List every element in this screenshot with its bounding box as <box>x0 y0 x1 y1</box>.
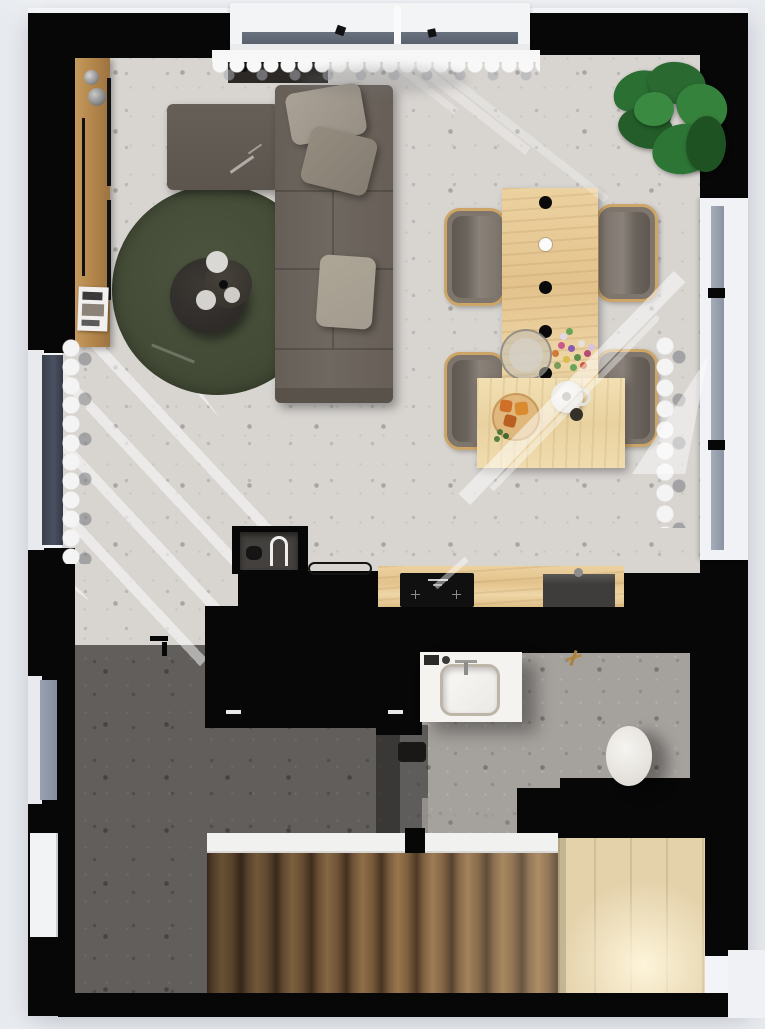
vanity-object <box>442 656 450 664</box>
coffee-table-plate <box>206 251 228 273</box>
niche-object <box>246 546 262 560</box>
hallway-concrete-patch <box>422 798 518 836</box>
dining-chair <box>596 204 658 302</box>
sideboard-rail <box>107 200 111 300</box>
magazine-print <box>81 320 99 327</box>
basin-faucet-stem <box>464 662 468 675</box>
sofa-seam <box>275 190 393 192</box>
sofa-pillow <box>316 254 377 330</box>
tray <box>308 562 372 575</box>
island-handle <box>388 710 403 714</box>
herb-sprig <box>497 429 503 435</box>
sofa-chaise <box>167 104 279 190</box>
wall-right-stairs <box>704 836 748 956</box>
glass-bowl-inner <box>509 338 543 372</box>
cooktop-burner-mark <box>411 590 420 599</box>
snack-item <box>514 401 528 415</box>
wall-hall-inner <box>58 645 75 995</box>
coffee-table-plate <box>196 290 216 310</box>
top-window-handle <box>427 28 436 37</box>
pendant-dot-black <box>539 281 552 294</box>
wash-basin <box>440 664 500 716</box>
arched-lamp <box>270 536 288 566</box>
plant-leaf <box>686 116 726 172</box>
dining-chair <box>444 208 506 306</box>
magazine <box>77 286 109 331</box>
outside-notch <box>728 950 765 1018</box>
magazine-print <box>82 292 102 301</box>
door-pivot-mark <box>162 642 167 656</box>
right-window-glass <box>711 206 724 550</box>
curtain-shadow <box>298 66 468 94</box>
cooktop-burner-mark <box>452 590 461 599</box>
pendant-dot-black <box>539 196 552 209</box>
plant-leaf <box>634 92 674 126</box>
hall-floor-fixture <box>398 742 426 762</box>
wall-top-left <box>28 13 233 58</box>
sideboard-rail <box>107 78 111 186</box>
kitchen-sink <box>543 574 615 607</box>
stair-notch <box>405 828 425 854</box>
right-window-mullion <box>708 288 725 298</box>
kitchen-cabinet-right <box>623 573 704 653</box>
right-window-mullion <box>708 440 725 450</box>
toilet <box>606 726 652 786</box>
stair-landing-strip <box>207 833 558 853</box>
wall-bottom <box>58 993 734 1017</box>
sheer-curtain-left <box>62 338 92 564</box>
wall-bath-left <box>376 601 422 735</box>
coffee-table-plate <box>224 287 240 303</box>
top-window-mullion <box>394 6 401 46</box>
sideboard-rail <box>82 118 85 276</box>
metal-cup <box>88 88 106 106</box>
sofa-front-edge <box>275 388 393 403</box>
left-window-lower-glass <box>40 680 57 800</box>
wall-left-upper <box>28 13 75 353</box>
floor-plan-render <box>0 0 765 1029</box>
left-window-upper-glass <box>42 355 63 545</box>
island-handle <box>226 710 241 714</box>
door-pivot-mark <box>150 636 168 641</box>
chair-cushion <box>452 216 498 298</box>
coffee-table-center <box>219 280 228 289</box>
wall-bath-bottom <box>560 778 705 838</box>
metal-cup <box>84 70 99 85</box>
magazine-print <box>82 304 104 317</box>
stair-treads-shading <box>207 853 558 993</box>
flower-bouquet <box>558 342 565 349</box>
entry-door <box>30 833 58 937</box>
stair-landing <box>558 838 705 993</box>
chair-cushion <box>604 212 650 294</box>
stair-landing-edge <box>558 838 566 993</box>
snack-item <box>499 399 513 413</box>
sofa-seam <box>275 348 393 350</box>
pendant-dot-white <box>539 238 552 251</box>
vanity-object <box>424 655 439 665</box>
sink-faucet <box>574 568 583 577</box>
